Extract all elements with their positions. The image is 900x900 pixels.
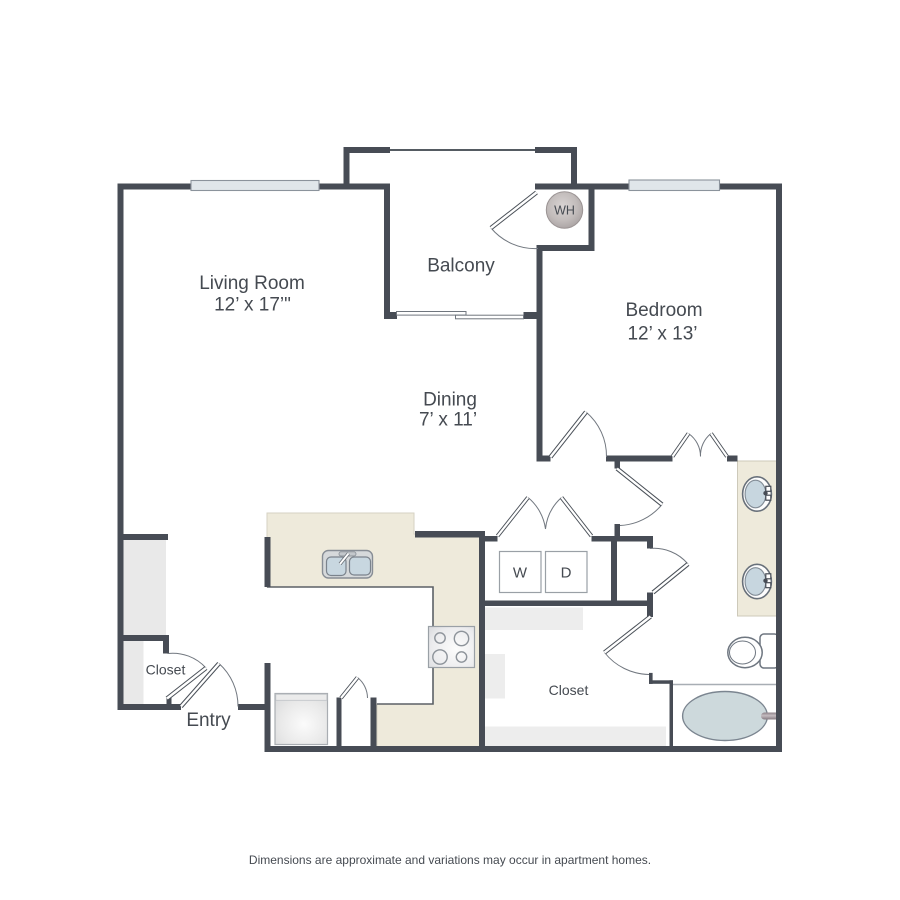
svg-text:Closet: Closet (549, 682, 589, 698)
svg-text:Bedroom: Bedroom (625, 300, 702, 321)
svg-text:Balcony: Balcony (427, 256, 495, 277)
svg-text:W: W (513, 565, 528, 582)
svg-text:Living Room: Living Room (199, 273, 305, 294)
svg-text:7’ x 11’: 7’ x 11’ (419, 410, 477, 431)
svg-text:Entry: Entry (186, 710, 231, 731)
svg-text:D: D (561, 565, 572, 582)
svg-text:12’ x 13’: 12’ x 13’ (627, 324, 697, 345)
svg-text:WH: WH (554, 204, 575, 218)
svg-text:Dining: Dining (423, 390, 477, 411)
svg-text:Closet: Closet (146, 662, 186, 678)
svg-text:12’ x 17’": 12’ x 17’" (214, 295, 291, 316)
svg-text:Dimensions are approximate and: Dimensions are approximate and variation… (249, 853, 651, 867)
